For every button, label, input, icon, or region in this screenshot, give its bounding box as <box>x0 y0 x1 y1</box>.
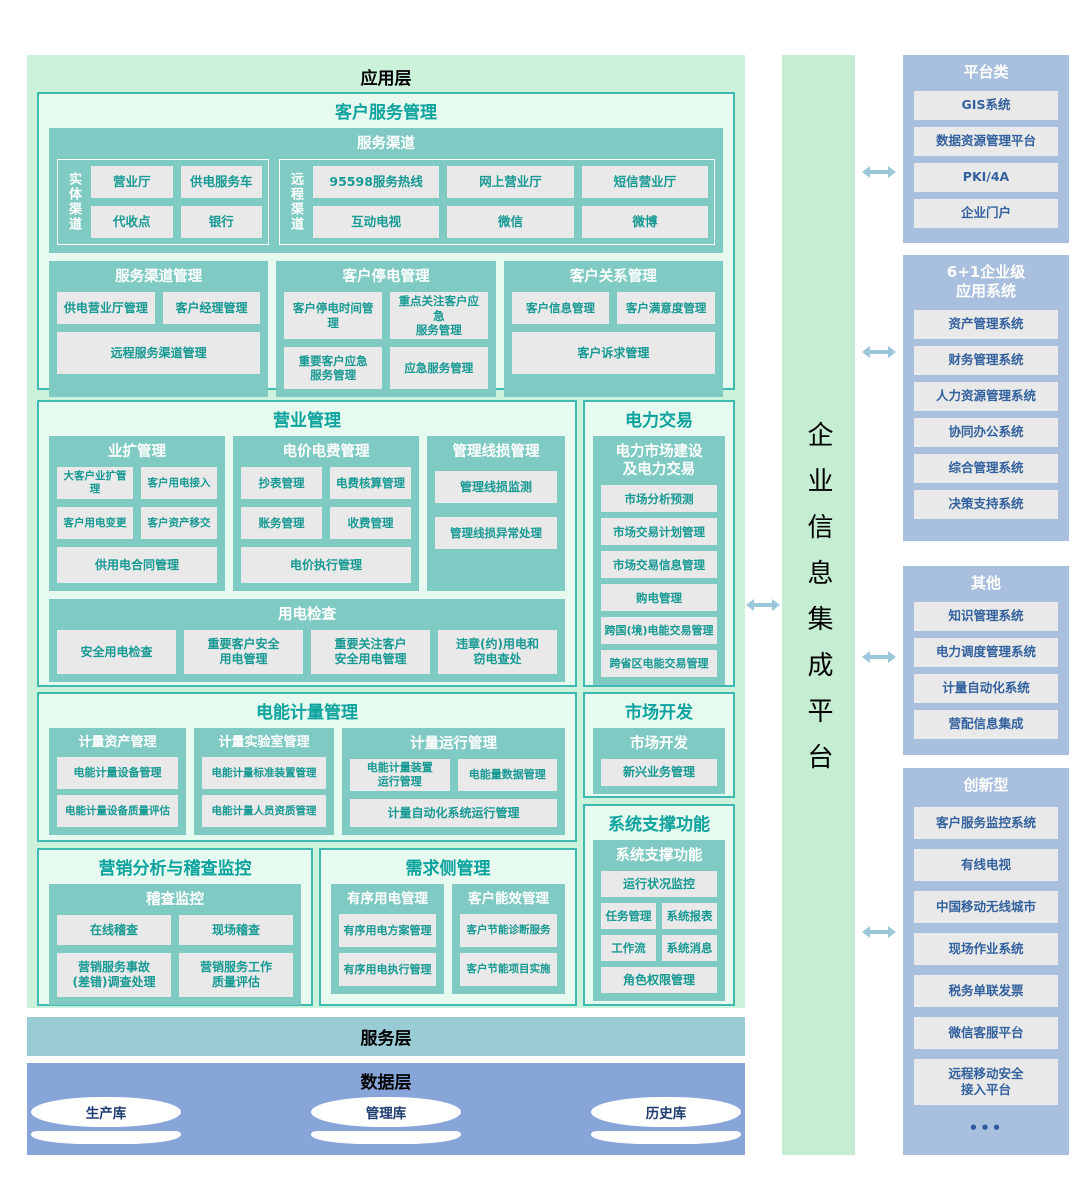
item: 系统报表 <box>662 903 717 929</box>
architecture-diagram: 应用层 客户服务管理 服务渠道 实体渠道 营业厅 供电服务车 代收点 银行 <box>0 0 1072 1193</box>
group-title: 服务渠道管理 <box>57 266 260 292</box>
item: 客户服务监控系统 <box>914 807 1058 839</box>
service-layer: 服务层 <box>27 1017 745 1056</box>
item: 应急服务管理 <box>390 347 488 389</box>
group-title: 计量实验室管理 <box>202 733 326 757</box>
item: 微信 <box>447 206 573 238</box>
item: 财务管理系统 <box>914 346 1058 375</box>
remote-channel-grid: 95598服务热线 网上营业厅 短信营业厅 互动电视 微信 微博 <box>313 166 708 238</box>
item: 资产管理系统 <box>914 310 1058 339</box>
group-customer-efficiency: 客户能效管理 客户节能诊断服务 客户节能项目实施 <box>452 884 565 994</box>
database-row: 生产库 管理库 历史库 <box>27 1097 745 1144</box>
item: 电能计量设备质量评估 <box>57 795 178 827</box>
item: 电力调度管理系统 <box>914 638 1058 667</box>
group-market-dev: 市场开发 新兴业务管理 <box>593 728 725 794</box>
database-cylinder-icon: 生产库 <box>31 1097 181 1144</box>
item: 计量自动化系统运行管理 <box>350 799 557 827</box>
group-power-inspection: 用电检查 安全用电检查 重要客户安全 用电管理 重要关注客户 安全用电管理 违章… <box>49 599 565 682</box>
item: 违章(约)用电和 窃电查处 <box>438 630 557 674</box>
item: 人力资源管理系统 <box>914 382 1058 411</box>
bidirectional-arrow-icon <box>862 650 896 664</box>
item: 客户节能诊断服务 <box>460 914 557 947</box>
right-section-title: 其他 <box>914 574 1058 595</box>
item: 客户用电接入 <box>141 467 217 499</box>
item: 管理线损监测 <box>435 471 557 503</box>
item: 重点关注客户应急 服务管理 <box>390 292 488 339</box>
item: 客户停电时间管理 <box>284 292 382 339</box>
item: 供用电合同管理 <box>57 547 217 583</box>
item: 中国移动无线城市 <box>914 891 1058 923</box>
item: 运行状况监控 <box>601 871 717 897</box>
data-layer-title: 数据层 <box>27 1063 745 1093</box>
item: 95598服务热线 <box>313 166 439 198</box>
item: 在线稽查 <box>57 915 171 945</box>
item: 营业厅 <box>91 166 173 198</box>
group-title: 电价电费管理 <box>241 441 411 467</box>
bidirectional-arrow-icon <box>862 165 896 179</box>
section-marketing-audit: 营销分析与稽查监控 稽查监控 在线稽查 现场稽查 营销服务事故 (差错)调查处理… <box>37 848 313 1006</box>
item: 供电服务车 <box>181 166 263 198</box>
group-orderly-power: 有序用电管理 有序用电方案管理 有序用电执行管理 <box>331 884 444 994</box>
section-title: 电能计量管理 <box>39 694 575 728</box>
item: 网上营业厅 <box>447 166 573 198</box>
item: 客户节能项目实施 <box>460 953 557 986</box>
database-label: 管理库 <box>311 1097 461 1127</box>
item: 营销服务事故 (差错)调查处理 <box>57 953 171 997</box>
group-title: 服务渠道 <box>57 133 715 159</box>
section-demand-side: 需求侧管理 有序用电管理 有序用电方案管理 有序用电执行管理 客户能效管理 客户… <box>319 848 577 1006</box>
item: 电能量数据管理 <box>458 759 558 791</box>
right-section-title: 创新型 <box>914 776 1058 797</box>
database-label: 历史库 <box>591 1097 741 1127</box>
cylinder-base <box>311 1131 461 1144</box>
item: 重要客户应急 服务管理 <box>284 347 382 389</box>
group-expansion-mgmt: 业扩管理 大客户业扩管理 客户用电接入 客户用电变更 客户资产移交 供用电合同管… <box>49 436 225 591</box>
item: 客户信息管理 <box>512 292 610 324</box>
item: 电能计量设备管理 <box>57 757 178 789</box>
item: GIS系统 <box>914 91 1058 120</box>
item: 电能计量标准装置管理 <box>202 757 326 789</box>
item: 市场交易计划管理 <box>601 518 717 545</box>
integration-platform-bar: 企业信息集成平台 <box>782 55 855 1155</box>
section-customer-service: 客户服务管理 服务渠道 实体渠道 营业厅 供电服务车 代收点 银行 远程渠 <box>37 92 735 390</box>
item: 重要关注客户 安全用电管理 <box>311 630 430 674</box>
item: 银行 <box>181 206 263 238</box>
group-service-channels: 服务渠道 实体渠道 营业厅 供电服务车 代收点 银行 远程渠道 <box>49 128 723 253</box>
item: 客户经理管理 <box>163 292 261 324</box>
integration-platform-title: 企业信息集成平台 <box>800 421 837 789</box>
section-business-mgmt: 营业管理 业扩管理 大客户业扩管理 客户用电接入 客户用电变更 客户资产移交 供… <box>37 400 577 687</box>
group-title: 稽查监控 <box>57 889 293 915</box>
item: 客户资产移交 <box>141 507 217 539</box>
item: 购电管理 <box>601 584 717 611</box>
group-system-support: 系统支撑功能 运行状况监控 任务管理 系统报表 工作流 系统消息 角色权限管理 <box>593 840 725 1001</box>
group-title: 客户能效管理 <box>460 889 557 914</box>
right-section-title: 6+1企业级 应用系统 <box>914 263 1058 303</box>
section-title: 市场开发 <box>585 694 733 728</box>
item: 大客户业扩管理 <box>57 467 133 499</box>
item: 重要客户安全 用电管理 <box>184 630 303 674</box>
item: 综合管理系统 <box>914 454 1058 483</box>
right-section-enterprise: 6+1企业级 应用系统 资产管理系统 财务管理系统 人力资源管理系统 协同办公系… <box>903 255 1069 541</box>
right-section-innovative: 创新型 客户服务监控系统 有线电视 中国移动无线城市 现场作业系统 税务单联发票… <box>903 768 1069 1155</box>
group-channel-mgmt: 服务渠道管理 供电营业厅管理 客户经理管理 远程服务渠道管理 <box>49 261 268 397</box>
section-power-trading: 电力交易 电力市场建设 及电力交易 市场分析预测 市场交易计划管理 市场交易信息… <box>583 400 735 687</box>
section-title: 系统支撑功能 <box>585 806 733 840</box>
group-title: 用电检查 <box>57 604 557 630</box>
remote-channel-box: 远程渠道 95598服务热线 网上营业厅 短信营业厅 互动电视 微信 微博 <box>279 159 715 245</box>
section-market-dev: 市场开发 市场开发 新兴业务管理 <box>583 692 735 798</box>
right-section-others: 其他 知识管理系统 电力调度管理系统 计量自动化系统 营配信息集成 <box>903 566 1069 755</box>
cylinder-base <box>31 1131 181 1144</box>
item: 客户满意度管理 <box>617 292 715 324</box>
group-price-fee-mgmt: 电价电费管理 抄表管理 电费核算管理 账务管理 收费管理 电价执行管理 <box>233 436 419 591</box>
item: 知识管理系统 <box>914 602 1058 631</box>
bidirectional-arrow-icon <box>862 345 896 359</box>
item: 营销服务工作 质量评估 <box>179 953 293 997</box>
item: 微博 <box>582 206 708 238</box>
item: 数据资源管理平台 <box>914 127 1058 156</box>
bidirectional-arrow-icon <box>746 598 780 612</box>
section-title: 需求侧管理 <box>321 850 575 884</box>
item: 跨省区电能交易管理 <box>601 650 717 677</box>
item: 供电营业厅管理 <box>57 292 155 324</box>
item: 客户用电变更 <box>57 507 133 539</box>
item: 新兴业务管理 <box>601 759 717 786</box>
group-customer-relation: 客户关系管理 客户信息管理 客户满意度管理 客户诉求管理 <box>504 261 723 397</box>
item: 电能计量装置 运行管理 <box>350 759 450 791</box>
item: 决策支持系统 <box>914 490 1058 519</box>
item: 现场稽查 <box>179 915 293 945</box>
item: PKI/4A <box>914 163 1058 192</box>
item: 市场分析预测 <box>601 485 717 512</box>
group-title: 管理线损管理 <box>435 441 557 467</box>
section-title: 客户服务管理 <box>39 94 733 128</box>
group-title: 计量资产管理 <box>57 733 178 757</box>
group-power-market: 电力市场建设 及电力交易 市场分析预测 市场交易计划管理 市场交易信息管理 购电… <box>593 436 725 685</box>
group-title: 计量运行管理 <box>350 733 557 759</box>
item: 税务单联发票 <box>914 975 1058 1007</box>
group-title: 市场开发 <box>601 733 717 759</box>
section-title: 电力交易 <box>585 402 733 436</box>
database-cylinder-icon: 管理库 <box>311 1097 461 1144</box>
item: 客户诉求管理 <box>512 332 715 374</box>
item: 互动电视 <box>313 206 439 238</box>
group-metering-operation: 计量运行管理 电能计量装置 运行管理 电能量数据管理 计量自动化系统运行管理 <box>342 728 565 835</box>
group-metering-asset: 计量资产管理 电能计量设备管理 电能计量设备质量评估 <box>49 728 186 835</box>
right-section-platform: 平台类 GIS系统 数据资源管理平台 PKI/4A 企业门户 <box>903 55 1069 243</box>
right-section-title: 平台类 <box>914 63 1058 84</box>
group-outage-mgmt: 客户停电管理 客户停电时间管理 重点关注客户应急 服务管理 重要客户应急 服务管… <box>276 261 495 397</box>
item: 市场交易信息管理 <box>601 551 717 578</box>
item: 安全用电检查 <box>57 630 176 674</box>
item: 角色权限管理 <box>601 967 717 993</box>
group-title: 客户关系管理 <box>512 266 715 292</box>
customer-service-groups: 服务渠道管理 供电营业厅管理 客户经理管理 远程服务渠道管理 客户停电管理 客户… <box>49 261 723 397</box>
group-title: 客户停电管理 <box>284 266 487 292</box>
database-cylinder-icon: 历史库 <box>591 1097 741 1144</box>
cylinder-base <box>591 1131 741 1144</box>
remote-channel-label: 远程渠道 <box>286 166 305 238</box>
ellipsis-more-indicator: ••• <box>914 1119 1058 1137</box>
section-title: 营业管理 <box>39 402 575 436</box>
item: 计量自动化系统 <box>914 674 1058 703</box>
item: 营配信息集成 <box>914 710 1058 739</box>
service-layer-title: 服务层 <box>361 1024 412 1049</box>
section-metering-mgmt: 电能计量管理 计量资产管理 电能计量设备管理 电能计量设备质量评估 计量实验室管… <box>37 692 577 842</box>
item: 抄表管理 <box>241 467 322 499</box>
channel-row: 实体渠道 营业厅 供电服务车 代收点 银行 远程渠道 95598服务热线 网上营… <box>57 159 715 245</box>
bidirectional-arrow-icon <box>862 925 896 939</box>
group-metering-lab: 计量实验室管理 电能计量标准装置管理 电能计量人员资质管理 <box>194 728 334 835</box>
item: 企业门户 <box>914 199 1058 228</box>
physical-channel-label: 实体渠道 <box>64 166 83 238</box>
item: 代收点 <box>91 206 173 238</box>
item: 管理线损异常处理 <box>435 517 557 549</box>
data-layer: 数据层 生产库 管理库 历史库 <box>27 1063 745 1155</box>
group-title: 系统支撑功能 <box>601 845 717 871</box>
physical-channel-grid: 营业厅 供电服务车 代收点 银行 <box>91 166 262 238</box>
item: 短信营业厅 <box>582 166 708 198</box>
group-line-loss-mgmt: 管理线损管理 管理线损监测 管理线损异常处理 <box>427 436 565 591</box>
group-title: 电力市场建设 及电力交易 <box>601 441 717 485</box>
item: 现场作业系统 <box>914 933 1058 965</box>
application-layer-title: 应用层 <box>27 55 745 89</box>
item: 协同办公系统 <box>914 418 1058 447</box>
application-layer: 应用层 客户服务管理 服务渠道 实体渠道 营业厅 供电服务车 代收点 银行 <box>27 55 745 1008</box>
database-label: 生产库 <box>31 1097 181 1127</box>
item: 有线电视 <box>914 849 1058 881</box>
item: 有序用电方案管理 <box>339 914 436 947</box>
group-title: 业扩管理 <box>57 441 217 467</box>
physical-channel-box: 实体渠道 营业厅 供电服务车 代收点 银行 <box>57 159 269 245</box>
item: 账务管理 <box>241 507 322 539</box>
item: 跨国(境)电能交易管理 <box>601 617 717 644</box>
item: 系统消息 <box>662 935 717 961</box>
item: 有序用电执行管理 <box>339 953 436 986</box>
item: 收费管理 <box>330 507 411 539</box>
group-title: 有序用电管理 <box>339 889 436 914</box>
item: 工作流 <box>601 935 656 961</box>
item: 远程移动安全 接入平台 <box>914 1059 1058 1105</box>
item: 电费核算管理 <box>330 467 411 499</box>
section-system-support: 系统支撑功能 系统支撑功能 运行状况监控 任务管理 系统报表 工作流 系统消息 … <box>583 804 735 1006</box>
group-audit-monitor: 稽查监控 在线稽查 现场稽查 营销服务事故 (差错)调查处理 营销服务工作 质量… <box>49 884 301 1005</box>
item: 电价执行管理 <box>241 547 411 583</box>
item: 任务管理 <box>601 903 656 929</box>
item: 微信客服平台 <box>914 1017 1058 1049</box>
item: 电能计量人员资质管理 <box>202 795 326 827</box>
item: 远程服务渠道管理 <box>57 332 260 374</box>
section-title: 营销分析与稽查监控 <box>39 850 311 884</box>
